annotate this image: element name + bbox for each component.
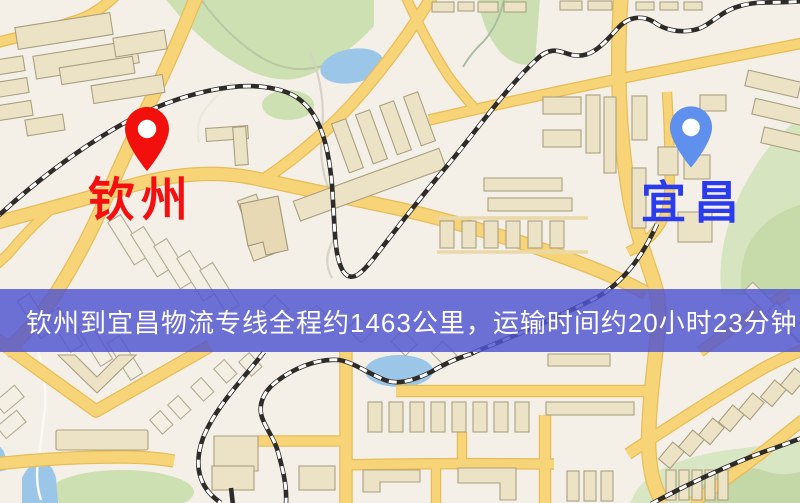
map-pin-icon — [123, 105, 171, 173]
route-info-banner: 钦州到宜昌物流专线全程约1463公里，运输时间约20小时23分钟. — [0, 289, 800, 352]
route-info-text: 钦州到宜昌物流专线全程约1463公里，运输时间约20小时23分钟. — [26, 303, 800, 340]
origin-label: 钦州 — [88, 176, 194, 223]
pin-hole — [682, 119, 700, 137]
origin-pin[interactable] — [123, 105, 171, 173]
pin-hole — [138, 120, 156, 138]
destination-pin[interactable] — [668, 104, 714, 170]
map-background — [0, 0, 800, 503]
map-pin-icon — [668, 104, 714, 170]
map-canvas: 钦州 宜昌 钦州到宜昌物流专线全程约1463公里，运输时间约20小时23分钟. — [0, 0, 800, 503]
pin-shape — [670, 106, 712, 167]
pin-shape — [125, 107, 169, 171]
destination-label: 宜昌 — [641, 180, 747, 225]
